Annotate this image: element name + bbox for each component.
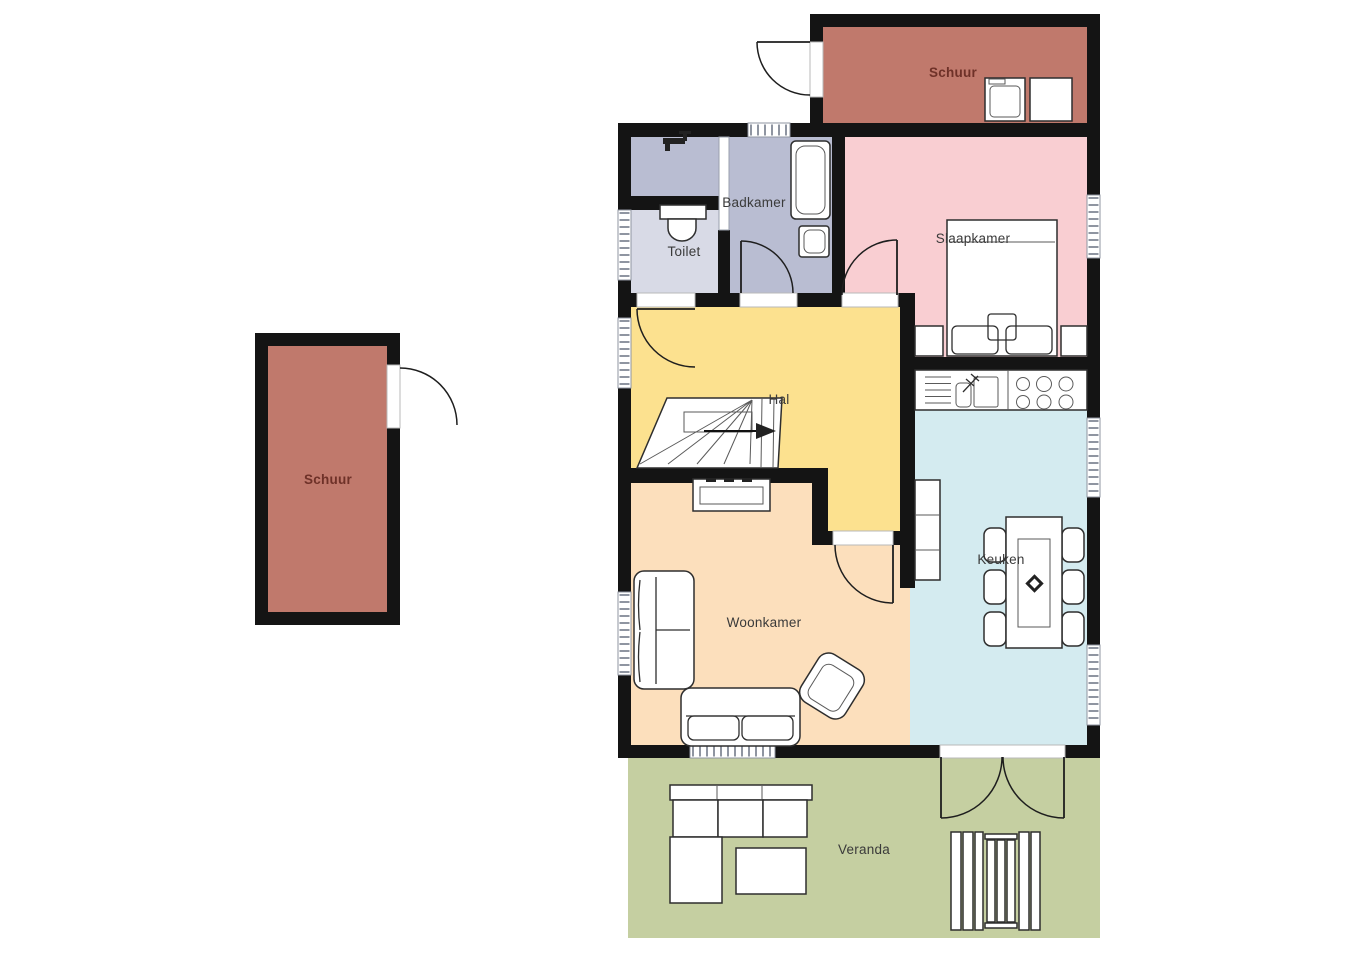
kitchen-counter <box>915 370 1087 410</box>
dryer <box>1030 78 1072 121</box>
nightstand-right <box>1061 326 1087 356</box>
room-label-schuur-left: Schuur <box>304 472 353 487</box>
room-floor-shower-nook <box>631 137 719 196</box>
glass-partition <box>719 137 729 230</box>
door-swing-schuur-left <box>400 368 457 425</box>
window-woonkamer-left <box>618 592 631 675</box>
room-label-slaapkamer: Slaapkamer <box>936 231 1011 246</box>
sofa-three-seat <box>681 688 800 746</box>
room-label-schuur-top: Schuur <box>929 65 978 80</box>
door-opening-badkamer <box>740 293 797 307</box>
door-opening-schuur-left <box>387 365 400 428</box>
chair <box>984 612 1006 646</box>
window-toilet-left <box>618 210 631 280</box>
bathtub <box>791 141 830 219</box>
window-keuken-right-upper <box>1087 418 1100 497</box>
door-opening-slaapkamer <box>842 293 898 307</box>
chair <box>984 570 1006 604</box>
window-slaapkamer-right <box>1087 195 1100 258</box>
dining-table <box>984 517 1084 648</box>
door-opening-toilet <box>637 293 695 307</box>
room-label-hal: Hal <box>768 392 789 407</box>
door-opening-woonkamer <box>833 531 893 545</box>
coffee-table <box>736 848 806 894</box>
window-keuken-right-lower <box>1087 645 1100 725</box>
room-label-keuken: Keuken <box>977 552 1024 567</box>
garden-set <box>951 832 1040 930</box>
room-label-toilet: Toilet <box>667 244 700 259</box>
window-woonkamer-bottom <box>690 745 775 758</box>
nightstand-left <box>915 326 943 356</box>
floorplan-canvas: Schuur Schuur Badkamer Toilet Slaapkamer… <box>0 0 1357 960</box>
floorplan-svg: Schuur Schuur Badkamer Toilet Slaapkamer… <box>0 0 1357 960</box>
chair <box>1062 528 1084 562</box>
chair <box>1062 570 1084 604</box>
sofa-two-seat <box>634 571 694 689</box>
kitchen-side-counter <box>915 480 940 580</box>
door-opening-veranda <box>940 745 1065 758</box>
window-badkamer-top <box>748 123 790 137</box>
door-swing-schuur-top <box>757 42 810 95</box>
washing-machine <box>985 78 1025 121</box>
chair <box>1062 612 1084 646</box>
washbasin <box>799 226 829 257</box>
window-hal-left <box>618 318 631 388</box>
door-opening-schuur-top <box>810 42 823 97</box>
tv-cabinet <box>693 478 770 511</box>
room-label-veranda: Veranda <box>838 842 890 857</box>
room-label-woonkamer: Woonkamer <box>727 615 802 630</box>
room-label-badkamer: Badkamer <box>722 195 786 210</box>
